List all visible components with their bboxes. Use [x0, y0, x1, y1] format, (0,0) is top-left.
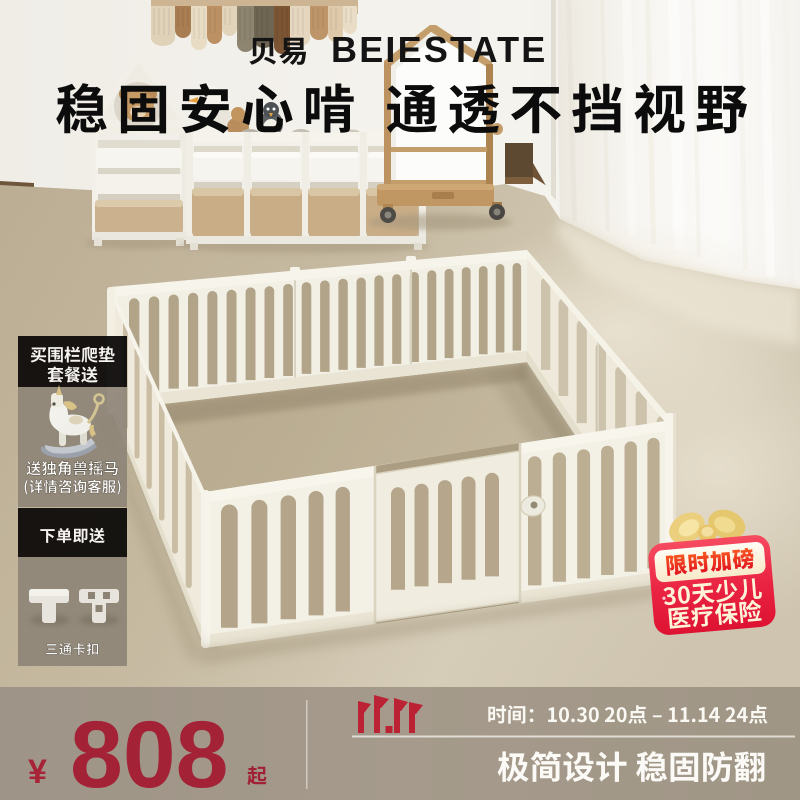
svg-text:¥: ¥: [28, 753, 47, 791]
svg-text:BEIESTATE: BEIESTATE: [331, 29, 547, 70]
svg-text:808: 808: [70, 702, 229, 800]
